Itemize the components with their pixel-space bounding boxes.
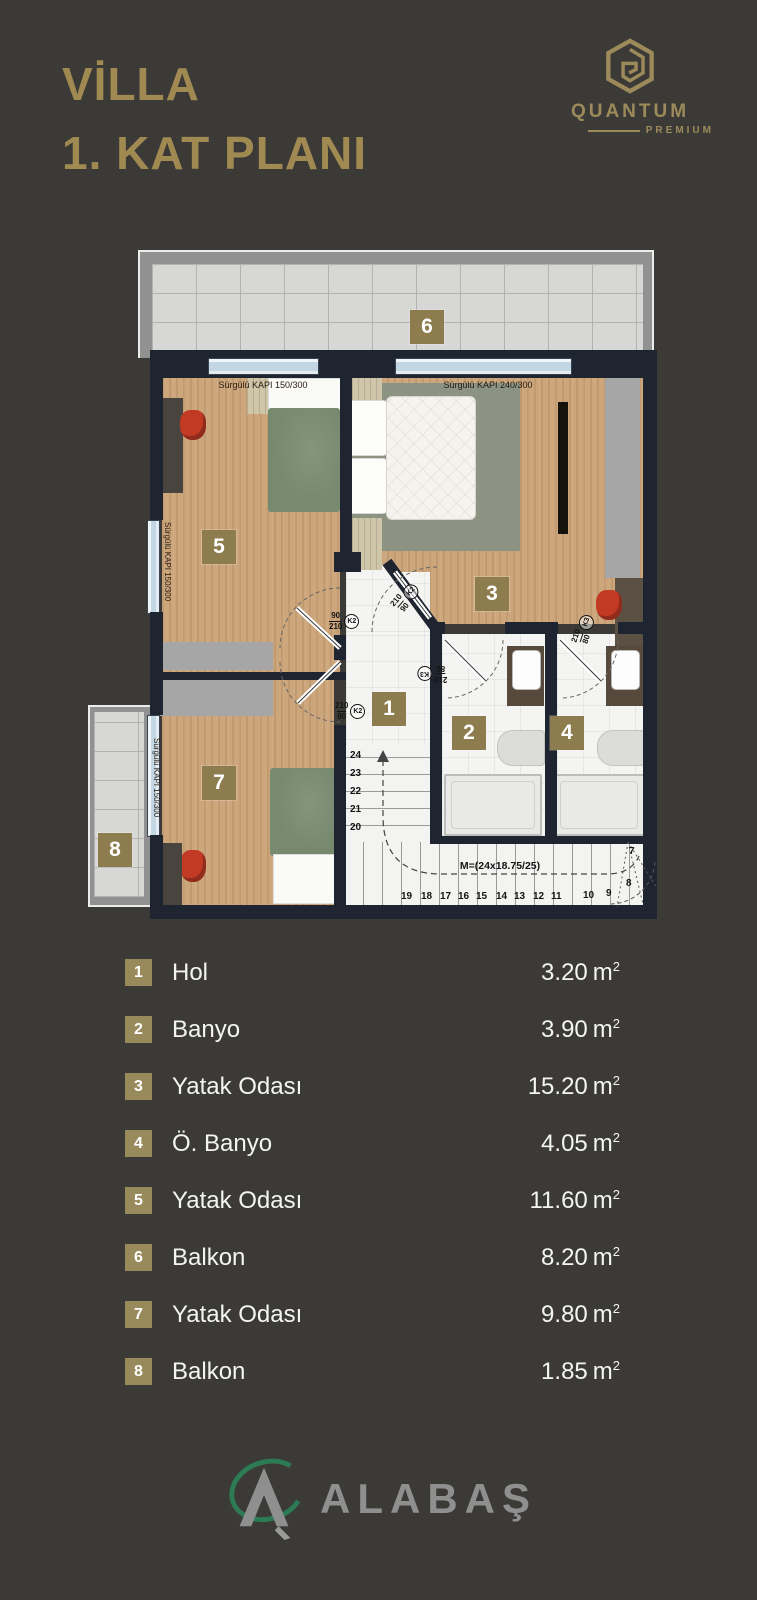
wall bbox=[150, 905, 657, 919]
room-badge-bedroom5: 5 bbox=[202, 530, 236, 564]
legend-room-area: 11.60m2 bbox=[529, 1187, 620, 1215]
wall bbox=[430, 622, 445, 634]
room-badge-hall: 1 bbox=[372, 692, 406, 726]
area-value: 9.80 bbox=[541, 1301, 588, 1328]
brand-subtitle: PREMIUM bbox=[646, 125, 714, 136]
area-value: 4.05 bbox=[541, 1130, 588, 1157]
legend-row: 6 Balkon 8.20m2 bbox=[125, 1229, 620, 1286]
room3-pillow bbox=[348, 400, 388, 456]
stair-step: 20 bbox=[350, 822, 361, 833]
area-unit: m2 bbox=[593, 1130, 620, 1157]
legend-room-name: Banyo bbox=[172, 1016, 240, 1044]
stair-step: 23 bbox=[350, 768, 361, 779]
legend-row: 4 Ö. Banyo 4.05m2 bbox=[125, 1115, 620, 1172]
balcony8-floor bbox=[94, 712, 144, 897]
area-value: 3.20 bbox=[541, 959, 588, 986]
wall bbox=[340, 378, 352, 572]
room-badge-bedroom7: 7 bbox=[202, 766, 236, 800]
door-code: K3 bbox=[577, 613, 596, 632]
floor-plan: Sürgülü KAPI 150/300 Sürgülü KAPI 240/30… bbox=[85, 250, 685, 920]
room-legend: 1 Hol 3.20m2 2 Banyo 3.90m2 3 Yatak Odas… bbox=[125, 944, 620, 1400]
legend-room-name: Yatak Odası bbox=[172, 1301, 302, 1329]
bath2-shower bbox=[444, 774, 542, 836]
stair-step: 9 bbox=[606, 888, 612, 899]
legend-room-name: Ö. Banyo bbox=[172, 1130, 272, 1158]
legend-badge: 1 bbox=[125, 959, 152, 986]
area-unit: m2 bbox=[593, 1244, 620, 1271]
area-unit: m2 bbox=[593, 1187, 620, 1214]
room-badge-balcony6: 6 bbox=[410, 310, 444, 344]
legend-room-name: Balkon bbox=[172, 1244, 245, 1272]
room3-chair bbox=[596, 590, 622, 620]
room7-wardrobe bbox=[153, 680, 273, 716]
door-code: K2 bbox=[350, 704, 365, 719]
legend-row: 8 Balkon 1.85m2 bbox=[125, 1343, 620, 1400]
legend-room-name: Hol bbox=[172, 959, 208, 987]
area-unit: m2 bbox=[593, 959, 620, 986]
door-label-balcony8: Sürgülü KAPI 150/300 bbox=[152, 738, 161, 838]
legend-room-area: 1.85m2 bbox=[541, 1358, 620, 1386]
legend-row: 3 Yatak Odası 15.20m2 bbox=[125, 1058, 620, 1115]
wall bbox=[334, 552, 361, 572]
hexagon-spiral-icon bbox=[604, 81, 656, 98]
stair-step: 22 bbox=[350, 786, 361, 797]
door-label-room3: Sürgülü KAPI 240/300 bbox=[408, 380, 568, 390]
legend-badge: 4 bbox=[125, 1130, 152, 1157]
bath4-shower bbox=[553, 774, 645, 836]
stair-step: 13 bbox=[514, 891, 525, 902]
door-height: 90 bbox=[337, 711, 346, 721]
legend-row: 1 Hol 3.20m2 bbox=[125, 944, 620, 1001]
room3-tv-unit bbox=[558, 402, 568, 534]
area-value: 15.20 bbox=[528, 1073, 588, 1100]
door-width: 210 bbox=[434, 675, 447, 683]
door-code: K2 bbox=[344, 614, 359, 629]
stair-step: 7 bbox=[629, 846, 635, 857]
door-tag-room5: 90210 K2 bbox=[329, 612, 359, 631]
page-title-line2: 1. KAT PLANI bbox=[62, 119, 367, 188]
legend-room-name: Yatak Odası bbox=[172, 1187, 302, 1215]
wall bbox=[334, 725, 346, 905]
room-badge-bath: 2 bbox=[452, 716, 486, 750]
area-unit: m2 bbox=[593, 1358, 620, 1385]
legend-room-area: 15.20m2 bbox=[528, 1073, 620, 1101]
area-unit: m2 bbox=[593, 1073, 620, 1100]
page-title: VİLLA 1. KAT PLANI bbox=[62, 50, 367, 188]
brand-divider bbox=[588, 130, 640, 132]
legend-room-area: 8.20m2 bbox=[541, 1244, 620, 1272]
area-value: 8.20 bbox=[541, 1244, 588, 1271]
room7-bed-duvet bbox=[270, 768, 336, 856]
wall bbox=[150, 350, 163, 520]
stair-step: 10 bbox=[583, 890, 594, 901]
legend-badge: 8 bbox=[125, 1358, 152, 1385]
area-unit: m2 bbox=[593, 1301, 620, 1328]
footer-logo: ALABAŞ bbox=[0, 1452, 757, 1545]
room7-chair bbox=[180, 850, 206, 882]
bath2-sink bbox=[512, 650, 541, 690]
stair-step: 14 bbox=[496, 891, 507, 902]
stair-step: 15 bbox=[476, 891, 487, 902]
legend-badge: 3 bbox=[125, 1073, 152, 1100]
stair-step: 21 bbox=[350, 804, 361, 815]
area-value: 1.85 bbox=[541, 1358, 588, 1385]
balcony6-floor bbox=[152, 264, 643, 352]
stairs-horizontal-run bbox=[345, 842, 643, 908]
sliding-door-room5 bbox=[208, 358, 319, 375]
door-code: K3 bbox=[417, 666, 432, 681]
wall bbox=[334, 635, 346, 660]
legend-badge: 5 bbox=[125, 1187, 152, 1214]
room3-wardrobe bbox=[605, 378, 640, 578]
bath4-toilet bbox=[597, 730, 645, 766]
legend-room-area: 9.80m2 bbox=[541, 1301, 620, 1329]
wall bbox=[150, 612, 163, 715]
stair-formula: M=(24x18.75/25) bbox=[425, 860, 575, 872]
page-title-line1: VİLLA bbox=[62, 50, 367, 119]
legend-row: 2 Banyo 3.90m2 bbox=[125, 1001, 620, 1058]
bath2-toilet bbox=[497, 730, 545, 766]
door-tag-bath2: 21080 K3 bbox=[417, 664, 447, 683]
room3-mattress bbox=[386, 396, 476, 520]
area-value: 11.60 bbox=[529, 1187, 587, 1214]
door-width: 210 bbox=[335, 702, 348, 710]
stair-step: 8 bbox=[626, 878, 632, 889]
area-value: 3.90 bbox=[541, 1016, 588, 1043]
room-badge-master-bath: 4 bbox=[550, 716, 584, 750]
stair-step: 18 bbox=[421, 891, 432, 902]
door-height: 210 bbox=[329, 621, 342, 631]
wall bbox=[505, 622, 558, 634]
stair-step: 16 bbox=[458, 891, 469, 902]
wall bbox=[430, 836, 643, 844]
wall bbox=[150, 672, 346, 680]
room7-bed-pillows bbox=[273, 854, 335, 904]
room5-bed-duvet bbox=[268, 408, 340, 512]
legend-room-area: 3.90m2 bbox=[541, 1016, 620, 1044]
area-unit: m2 bbox=[593, 1016, 620, 1043]
wall bbox=[643, 350, 657, 917]
room5-wardrobe-south bbox=[153, 642, 273, 670]
bath4-sink bbox=[611, 650, 640, 690]
legend-row: 5 Yatak Odası 11.60m2 bbox=[125, 1172, 620, 1229]
stair-step: 11 bbox=[551, 891, 562, 902]
door-tag-room7: 21090 K2 bbox=[335, 702, 365, 721]
sliding-door-room3 bbox=[395, 358, 572, 375]
sliding-door-room5-left bbox=[147, 520, 160, 614]
legend-room-name: Yatak Odası bbox=[172, 1073, 302, 1101]
legend-room-area: 3.20m2 bbox=[541, 959, 620, 987]
door-width: 90 bbox=[331, 612, 340, 620]
room5-chair bbox=[180, 410, 206, 440]
stair-step: 12 bbox=[533, 891, 544, 902]
legend-badge: 6 bbox=[125, 1244, 152, 1271]
room3-desk bbox=[615, 578, 643, 656]
wall bbox=[618, 622, 643, 634]
stair-step: 17 bbox=[440, 891, 451, 902]
legend-badge: 2 bbox=[125, 1016, 152, 1043]
room-badge-bedroom3: 3 bbox=[475, 577, 509, 611]
legend-row: 7 Yatak Odası 9.80m2 bbox=[125, 1286, 620, 1343]
brand-name: QUANTUM bbox=[540, 101, 720, 123]
door-label-room5-left: Sürgülü KAPI 150/300 bbox=[163, 522, 172, 617]
triangle-swoosh-icon bbox=[220, 1452, 308, 1545]
footer-brand-name: ALABAŞ bbox=[320, 1475, 537, 1523]
brand-logo: QUANTUM PREMIUM bbox=[540, 38, 720, 136]
stair-step: 19 bbox=[401, 891, 412, 902]
room3-pillow bbox=[348, 458, 388, 514]
stair-step: 24 bbox=[350, 750, 361, 761]
room-badge-balcony8: 8 bbox=[98, 833, 132, 867]
legend-badge: 7 bbox=[125, 1301, 152, 1328]
legend-room-name: Balkon bbox=[172, 1358, 245, 1386]
legend-room-area: 4.05m2 bbox=[541, 1130, 620, 1158]
door-height: 80 bbox=[436, 664, 445, 674]
door-label-room5: Sürgülü KAPI 150/300 bbox=[183, 380, 343, 390]
